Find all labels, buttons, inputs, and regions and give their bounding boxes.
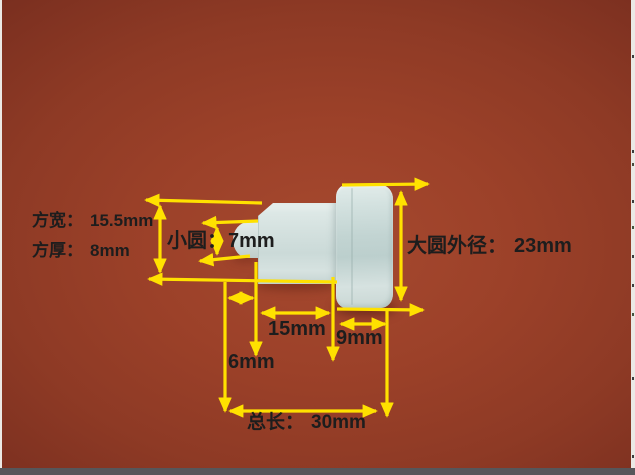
small-circle-value: 7mm <box>228 230 275 252</box>
total-length-value: 30mm <box>311 412 366 433</box>
square-thickness-caption: 方厚： <box>32 241 83 260</box>
small-circle-caption: 小圆： <box>167 230 227 252</box>
right-edge-strip <box>631 0 635 468</box>
stud-length-value: 6mm <box>228 351 275 373</box>
product-photo-canvas: 方宽：15.5mm 方厚：8mm 小圆：7mm 大圆外径：23mm 15mm 9… <box>0 0 635 475</box>
left-edge-strip <box>0 0 2 468</box>
bottom-gray-bar <box>0 468 635 475</box>
small-circle-label: 小圆：7mm <box>167 231 275 251</box>
square-thickness-label: 方厚：8mm <box>32 242 130 259</box>
large-circle-od-caption: 大圆外径： <box>407 235 507 257</box>
square-top-extension-line <box>146 200 262 203</box>
total-length-label: 总长：30mm <box>247 413 366 432</box>
disc-bottom-extension-line <box>337 309 423 310</box>
disc-top-extension-line <box>342 184 428 185</box>
disc-thickness-value: 9mm <box>336 327 383 349</box>
small-circle-top-leader <box>203 221 258 223</box>
flange-length-value: 15mm <box>268 318 326 340</box>
square-width-value: 15.5mm <box>90 211 153 230</box>
stud-length-label: 6mm <box>228 352 275 372</box>
large-circle-od-value: 23mm <box>514 235 572 257</box>
large-circle-od-label: 大圆外径：23mm <box>407 236 572 256</box>
total-length-caption: 总长： <box>247 412 304 433</box>
square-width-caption: 方宽： <box>32 211 83 230</box>
small-circle-bottom-leader <box>200 256 250 261</box>
square-thickness-value: 8mm <box>90 241 130 260</box>
square-bottom-extension-line <box>149 279 337 282</box>
square-width-label: 方宽：15.5mm <box>32 212 153 229</box>
disc-thickness-label: 9mm <box>336 328 383 348</box>
flange-length-label: 15mm <box>268 319 326 339</box>
